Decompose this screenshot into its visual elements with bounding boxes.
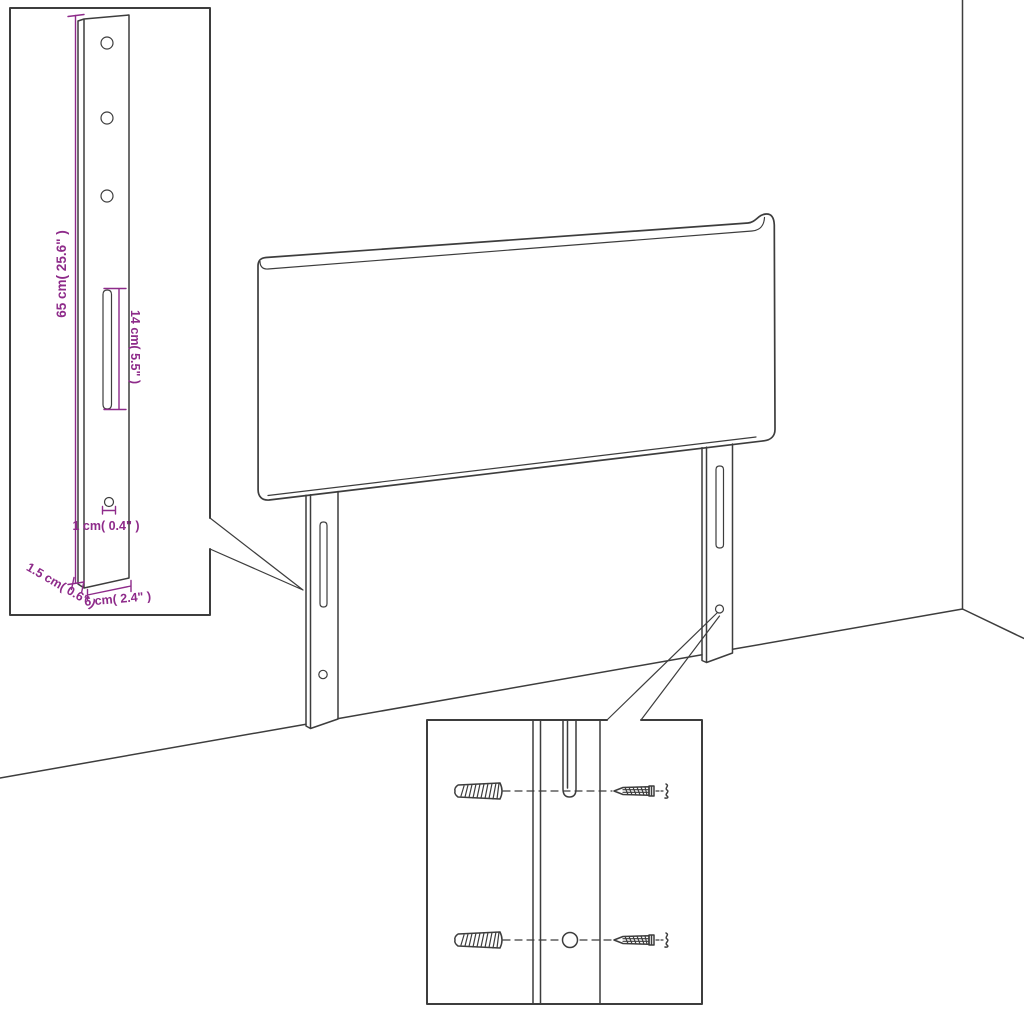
- dimension-annotations: 65 cm( 25.6" ) 14 cm( 5.5" ) 1 cm( 0.4" …: [24, 15, 152, 611]
- floor-line-left: [0, 609, 963, 778]
- inset-bracket-detail: 65 cm( 25.6" ) 14 cm( 5.5" ) 1 cm( 0.4" …: [10, 8, 210, 615]
- wall-anchor-icon-top: [455, 783, 502, 799]
- leg-right-slot: [716, 466, 724, 548]
- headboard-panel: [258, 214, 775, 500]
- leg-right-outline: [702, 444, 733, 663]
- leg-right-hole: [716, 605, 724, 613]
- leg-slot-enlarged: [563, 721, 576, 797]
- mounting-leg-left: [306, 492, 338, 729]
- inset-hardware-detail: [427, 720, 702, 1004]
- dim-height-line: [68, 15, 84, 585]
- bracket-drawing: [78, 15, 129, 588]
- leg-left-hole: [319, 670, 327, 678]
- callout-bracket-inset: [210, 518, 303, 590]
- dim-hole-line: [103, 507, 116, 515]
- bracket-hole-1: [101, 37, 113, 49]
- diagram-canvas: 65 cm( 25.6" ) 14 cm( 5.5" ) 1 cm( 0.4" …: [0, 0, 1024, 1024]
- dim-height-label: 65 cm( 25.6" ): [54, 230, 69, 317]
- wall-anchor-icon-bottom: [455, 932, 502, 948]
- leg-left-slot: [320, 522, 327, 607]
- bracket-hole-2: [101, 112, 113, 124]
- screw-icon-bottom: [614, 933, 668, 947]
- leg-strip-enlarged: [533, 721, 600, 1003]
- dim-slot-line: [104, 289, 126, 410]
- headboard: [258, 214, 775, 500]
- dim-depth-label: 1.5 cm( 0.6" ): [24, 560, 98, 611]
- floor-line-right: [963, 609, 1024, 639]
- headboard-assembly-diagram: 65 cm( 25.6" ) 14 cm( 5.5" ) 1 cm( 0.4" …: [0, 0, 1024, 1024]
- screw-icon-top: [614, 784, 668, 798]
- bracket-slot: [103, 290, 112, 409]
- inset-hardware-border: [427, 720, 702, 1004]
- leg-left-outline: [306, 492, 338, 729]
- bracket-hole-3: [101, 190, 113, 202]
- bracket-small-hole: [105, 498, 114, 507]
- leg-hole-enlarged: [563, 933, 578, 948]
- dim-slot-label: 14 cm( 5.5" ): [128, 310, 142, 384]
- dim-hole-label: 1 cm( 0.4" ): [72, 519, 139, 533]
- mounting-leg-right: [702, 444, 733, 663]
